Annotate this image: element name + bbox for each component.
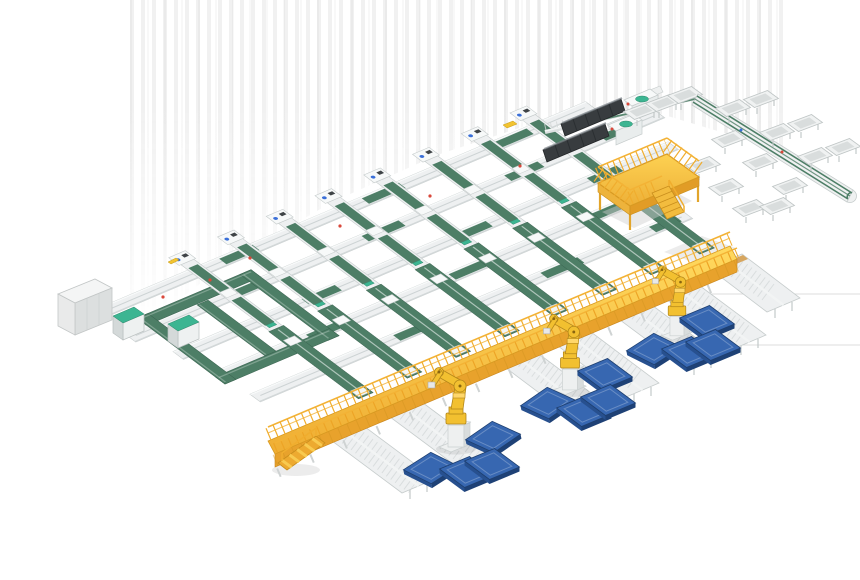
machine-teal-cover <box>620 121 633 127</box>
tray-chute <box>709 179 744 203</box>
machine-teal-cover <box>636 96 649 102</box>
facility-render <box>0 0 860 580</box>
yellow-parcel <box>503 121 517 128</box>
tray-chute <box>733 200 768 224</box>
tray-chute <box>760 198 795 222</box>
tray-chute <box>743 154 778 178</box>
tray-chute <box>744 91 779 115</box>
render-stage <box>0 0 860 580</box>
tray-chute <box>788 115 823 139</box>
tray-chute <box>826 139 860 163</box>
spur-conveyors <box>320 254 800 499</box>
sorter-chutes-sw <box>686 131 808 224</box>
tray-chute <box>773 178 808 202</box>
control-cabinet <box>58 279 112 335</box>
